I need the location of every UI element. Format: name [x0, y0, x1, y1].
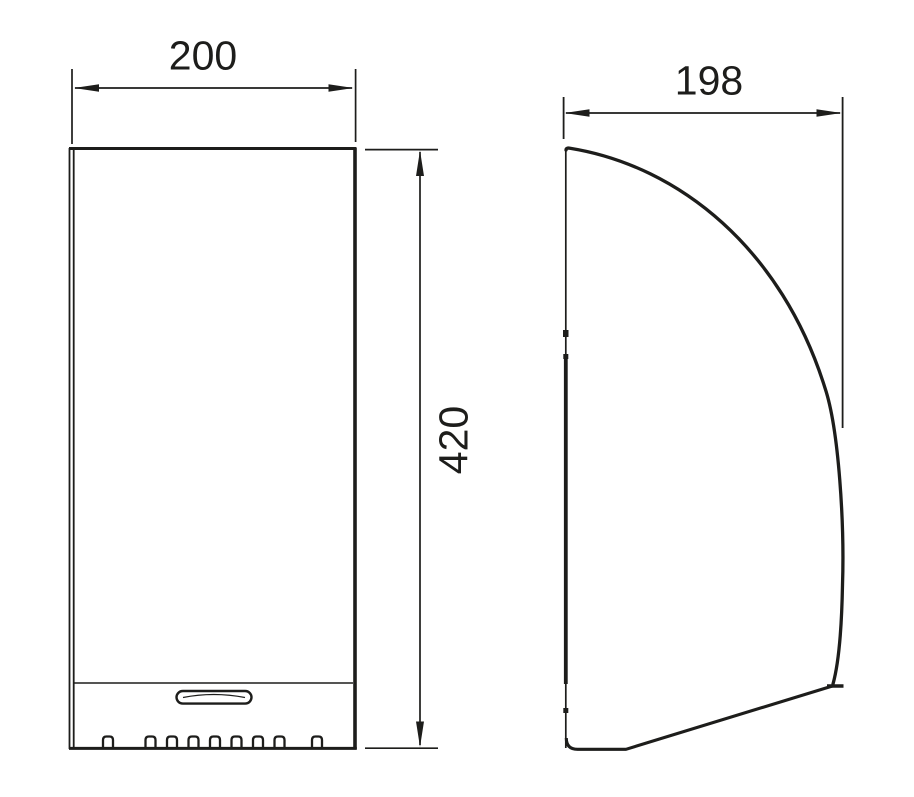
width-arrowhead-right	[329, 84, 354, 92]
side-seam-tick-lower	[563, 708, 568, 713]
width-dimension-label: 200	[169, 36, 237, 77]
height-dimension-label: 420	[434, 406, 475, 474]
depth-arrowhead-left	[565, 109, 590, 117]
depth-arrowhead-right	[817, 109, 842, 117]
dimension-height	[365, 150, 438, 749]
technical-drawing-canvas: 200 420 198	[0, 0, 914, 797]
depth-dimension-label: 198	[675, 61, 743, 102]
side-seam-tick-mid	[563, 354, 568, 359]
air-outlet-inner-line	[183, 695, 245, 698]
width-arrowhead-left	[74, 84, 99, 92]
height-arrowhead-bottom	[416, 722, 424, 748]
vent-slots	[103, 737, 322, 749]
dimension-depth	[564, 97, 843, 428]
side-bottom-edge	[566, 686, 832, 749]
side-front-curve	[566, 148, 843, 684]
height-arrowhead-top	[416, 151, 424, 177]
side-view	[563, 148, 844, 749]
front-view	[69, 148, 357, 749]
dimension-width	[72, 69, 356, 144]
dimension-drawing	[0, 0, 914, 797]
side-seam-tick-upper	[563, 330, 569, 337]
